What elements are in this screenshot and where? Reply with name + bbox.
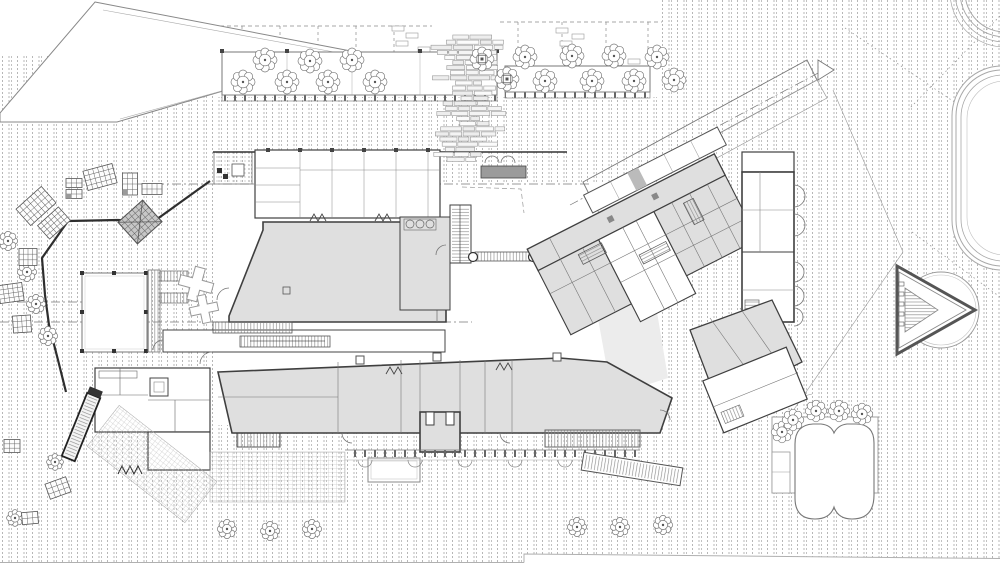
- pergola-posts-part: [80, 349, 84, 353]
- paver-stone: [476, 127, 494, 131]
- paver-stone: [470, 137, 487, 141]
- pergola-posts-part: [144, 271, 148, 275]
- roof-posts-part: [330, 148, 334, 152]
- tree-trunk: [838, 410, 840, 412]
- tree-trunk: [673, 79, 675, 81]
- paver-stone: [459, 106, 470, 110]
- paver-stone: [440, 137, 457, 141]
- paver-stone: [456, 81, 473, 85]
- roof-posts-part: [394, 148, 398, 152]
- triangle-pavilion-part-part: [899, 302, 904, 306]
- pergola-posts-part: [144, 310, 148, 314]
- paver-stone: [470, 35, 492, 39]
- paver-stone: [467, 86, 482, 90]
- tree-trunk: [309, 60, 311, 62]
- roof-posts-part: [298, 148, 302, 152]
- terrace-grid: [210, 452, 345, 502]
- sw-colonnade: [237, 432, 280, 447]
- tree-trunk: [861, 413, 863, 415]
- paver-stone: [495, 127, 505, 131]
- paver-stone: [466, 71, 478, 75]
- tree-trunk: [242, 81, 244, 83]
- tree-trunk: [14, 517, 16, 519]
- triangle-pavilion-part-part: [899, 312, 904, 316]
- paver-stone: [453, 35, 469, 39]
- tree-icon: [851, 403, 873, 425]
- paver-stone: [446, 106, 458, 110]
- pergola-posts-part: [144, 349, 148, 353]
- tree-icon: [340, 48, 364, 72]
- tree-trunk: [35, 303, 37, 305]
- tree-icon: [662, 68, 686, 92]
- tree-trunk: [524, 56, 526, 58]
- tree-trunk: [26, 271, 28, 273]
- paver-stone: [447, 157, 464, 161]
- paver-stone: [449, 50, 457, 54]
- paver-band: [505, 92, 650, 98]
- stair-run: [240, 336, 330, 347]
- tree-trunk: [506, 78, 509, 81]
- paver-stone: [454, 101, 476, 105]
- paver-stone: [491, 112, 506, 116]
- tree-icon: [580, 69, 604, 93]
- paver-stone: [461, 96, 472, 100]
- stair-hatch: [452, 207, 469, 261]
- planting-strips-part: [285, 49, 289, 53]
- tree-trunk: [226, 528, 228, 530]
- paver-stone: [471, 106, 486, 110]
- east-loop-road-part: [952, 66, 1000, 270]
- hatched-wall-band: [148, 270, 160, 352]
- paver-band: [222, 95, 497, 101]
- tree-icon: [653, 515, 672, 534]
- tree-icon: [470, 47, 494, 71]
- north-block: [255, 150, 440, 218]
- tree-icon: [0, 231, 18, 250]
- paver-stone: [452, 112, 468, 116]
- paver-stone: [469, 112, 489, 116]
- building-complex-part: [446, 412, 454, 425]
- building-complex-part: [433, 353, 441, 361]
- tree-trunk: [591, 80, 593, 82]
- tree-trunk: [286, 81, 288, 83]
- legend-box: [628, 59, 640, 64]
- paver-stone: [435, 132, 448, 136]
- tree-icon: [602, 44, 626, 68]
- tree-trunk: [374, 81, 376, 83]
- paver-stone: [432, 76, 449, 80]
- legend-box: [392, 26, 404, 31]
- se-hatch-band: [545, 430, 640, 447]
- legend-box: [406, 33, 418, 38]
- triangle-pavilion-part-part: [899, 322, 904, 326]
- tree-icon: [7, 510, 24, 527]
- tree-icon: [622, 69, 646, 93]
- paver-stone: [493, 40, 504, 44]
- tree-icon: [47, 454, 64, 471]
- paver-stone: [445, 55, 455, 59]
- pergola-posts-part: [80, 310, 84, 314]
- paver-stone: [481, 132, 496, 136]
- pool-terrace-part: [772, 452, 790, 493]
- planting-strips-part: [418, 49, 422, 53]
- paver-stone: [450, 76, 467, 80]
- stair-run: [213, 322, 292, 333]
- service-room: [400, 217, 450, 310]
- planter-table: [66, 179, 82, 188]
- tree-icon: [513, 45, 537, 69]
- paver-stone: [453, 61, 464, 65]
- paver-stone: [453, 91, 473, 95]
- paver-stone: [466, 157, 476, 161]
- tree-trunk: [792, 419, 794, 421]
- paver-stone: [478, 101, 490, 105]
- paver-stone: [456, 147, 475, 151]
- building-complex-part: [217, 168, 222, 173]
- paver-stone: [479, 142, 498, 146]
- paver-stone: [446, 40, 455, 44]
- planter-table: [19, 249, 37, 266]
- tree-trunk: [633, 80, 635, 82]
- triangle-pavilion-part-part: [899, 292, 904, 296]
- paver-stone: [441, 127, 462, 131]
- tree-icon: [275, 70, 299, 94]
- link-bridge: [160, 293, 188, 303]
- pergola-posts-part: [112, 349, 116, 353]
- tree-icon: [298, 49, 322, 73]
- building-complex-part: [223, 174, 228, 179]
- building-complex-part: [356, 356, 364, 364]
- paver-stone: [434, 152, 453, 156]
- paver-stone: [474, 96, 488, 100]
- paver-stone: [450, 132, 462, 136]
- paver-stone: [457, 40, 479, 44]
- paver-stone: [463, 127, 474, 131]
- tree-trunk: [662, 524, 664, 526]
- paver-stone: [446, 147, 455, 151]
- tree-trunk: [781, 431, 783, 433]
- paver-stone: [474, 91, 492, 95]
- paver-stone: [471, 117, 480, 121]
- triangle-pavilion-part-part: [899, 282, 904, 286]
- tree-trunk: [613, 55, 615, 57]
- tree-trunk: [54, 461, 56, 463]
- tree-trunk: [7, 240, 9, 242]
- tree-trunk: [571, 55, 573, 57]
- building-complex-part: [553, 353, 561, 361]
- roof-posts-part: [266, 148, 270, 152]
- architectural-site-plan: [0, 0, 1000, 572]
- roof-posts-part: [426, 148, 430, 152]
- planter-table: [22, 511, 39, 524]
- tree-trunk: [269, 530, 271, 532]
- tree-trunk: [619, 526, 621, 528]
- pergola: [82, 273, 147, 352]
- building-complex-part: [232, 164, 244, 176]
- tree-icon: [533, 69, 557, 93]
- paver-stone: [494, 45, 503, 49]
- tree-icon: [260, 521, 279, 540]
- planting-strips-part: [220, 49, 224, 53]
- paver-stone: [442, 142, 456, 146]
- paver-stone: [463, 132, 480, 136]
- planter-table: [4, 440, 20, 453]
- paver-stone: [460, 122, 476, 126]
- paver-stone: [447, 66, 465, 70]
- paver-stone: [474, 81, 482, 85]
- tree-icon: [805, 400, 827, 422]
- legend-box: [396, 41, 408, 46]
- planter-table: [0, 282, 24, 303]
- entrance-mat: [481, 166, 526, 178]
- roof-posts-part: [362, 148, 366, 152]
- building-complex-part: [426, 412, 434, 425]
- tree-icon: [231, 70, 255, 94]
- legend-box: [556, 28, 568, 33]
- paver-stone: [453, 45, 472, 49]
- planter-dark-cell: [66, 194, 71, 199]
- tree-trunk: [576, 526, 578, 528]
- planter-dark-cell: [123, 190, 128, 196]
- tree-icon: [253, 48, 277, 72]
- planter-table: [123, 173, 138, 195]
- paver-stone: [431, 45, 452, 49]
- tree-icon: [26, 294, 45, 313]
- paver-stone: [443, 101, 453, 105]
- legend-box: [572, 34, 584, 39]
- paver-stone: [470, 152, 481, 156]
- pergola-posts-part: [112, 271, 116, 275]
- site-plan-canvas: [0, 0, 1000, 572]
- reflecting-pool: [368, 458, 420, 482]
- east-block: [742, 172, 794, 322]
- tree-trunk: [544, 80, 546, 82]
- tree-icon: [38, 326, 57, 345]
- tree-trunk: [47, 335, 49, 337]
- column: [469, 253, 478, 262]
- tree-icon: [567, 517, 586, 536]
- east-block-upper: [742, 152, 794, 172]
- tree-icon: [316, 70, 340, 94]
- tree-icon: [302, 519, 321, 538]
- tree-icon: [217, 519, 236, 538]
- tree-trunk: [815, 410, 817, 412]
- planter-table: [142, 184, 162, 195]
- paver-stone: [488, 106, 502, 110]
- paver-stone: [459, 137, 469, 141]
- tree-icon: [828, 400, 850, 422]
- planter-table: [66, 190, 82, 199]
- tree-icon: [560, 44, 584, 68]
- planter-frame: [4, 440, 20, 453]
- tree-trunk: [264, 59, 266, 61]
- paver-stone: [457, 117, 470, 121]
- tree-icon: [645, 45, 669, 69]
- paver-stone: [455, 152, 469, 156]
- tree-trunk: [656, 56, 658, 58]
- paver-stone: [484, 86, 496, 90]
- tree-icon: [363, 70, 387, 94]
- paver-stone: [453, 86, 466, 90]
- tree-icon: [610, 517, 629, 536]
- paver-stone: [437, 112, 451, 116]
- paver-stone: [450, 71, 464, 75]
- tree-trunk: [351, 59, 353, 61]
- paver-stone: [458, 142, 478, 146]
- paver-stone: [437, 50, 447, 54]
- paver-stone: [469, 76, 490, 80]
- pool: [795, 424, 874, 519]
- tree-icon: [782, 409, 804, 431]
- paver-stone: [480, 40, 491, 44]
- tree-trunk: [481, 58, 484, 61]
- tree-icon: [495, 67, 519, 91]
- pergola-posts-part: [80, 271, 84, 275]
- planter-table: [12, 315, 31, 333]
- tree-trunk: [311, 528, 313, 530]
- tree-trunk: [327, 81, 329, 83]
- entry-bridge: [475, 252, 533, 261]
- paver-stone: [477, 122, 489, 126]
